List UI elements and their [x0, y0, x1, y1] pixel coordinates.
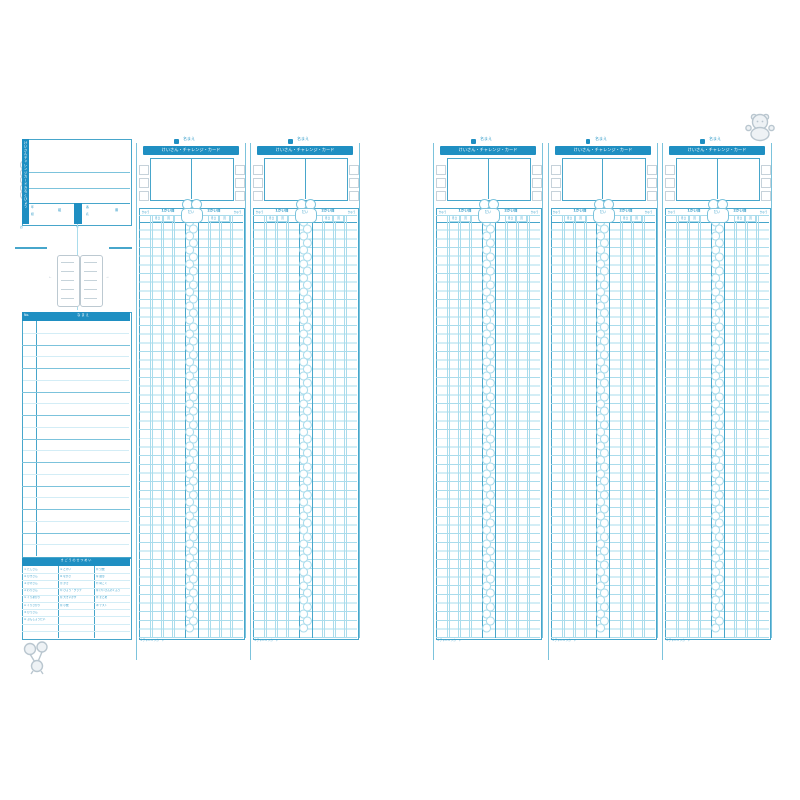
roster-row-line — [22, 392, 130, 393]
strip-4-grid-col-line — [644, 215, 645, 638]
roster-row-midline — [23, 333, 129, 334]
strip-3-grid-col-line — [458, 215, 459, 638]
strip-3-side-tab-left — [436, 191, 446, 201]
title-box-bar — [22, 139, 29, 224]
strip-4-side-tab-left — [551, 165, 561, 175]
strip-3-grid-col-line — [469, 215, 470, 638]
strip-3-sub-cell — [460, 215, 471, 222]
strip-2-grid-col-line — [266, 215, 267, 638]
strip-2-center-col-right — [312, 208, 313, 638]
strip-3-grid-col-line — [471, 215, 472, 638]
strip-5-sub-cell — [689, 215, 700, 222]
strip-1-side-tab-left — [139, 178, 149, 188]
strip-2-title-bar — [257, 146, 353, 155]
strip-3-grid-col-line — [507, 215, 508, 638]
cut-mark-left — [15, 247, 47, 249]
strip-2-grid-col-line — [333, 215, 334, 638]
strip-3-bubble-box-center-line — [488, 158, 489, 199]
strip-1-title-bar — [143, 146, 239, 155]
strip-3-sub-cell — [449, 215, 460, 222]
strip-4-sub-cell — [575, 215, 586, 222]
balloon-child-mascot — [21, 641, 57, 675]
strip-5-grid-col-line — [698, 215, 699, 638]
strip-1-side-tab-right — [235, 191, 245, 201]
strip-4-grid-col-line — [573, 215, 574, 638]
strip-1-grid-col-line — [172, 215, 173, 638]
title-box-line-1 — [29, 172, 130, 173]
roster-row-line — [22, 533, 130, 534]
legend-header-bar — [22, 558, 130, 566]
strip-1-border-right — [245, 143, 246, 638]
roster-row-midline — [23, 403, 129, 404]
strip-3-side-tab-right — [532, 191, 542, 201]
strip-5-name-icon — [700, 139, 705, 144]
booklet-right-page-dash — [84, 262, 97, 263]
strip-2-grid-col-line — [286, 215, 287, 638]
legend-row-line — [22, 602, 130, 603]
strip-2-bubble-box — [264, 158, 348, 201]
strip-1-bubble-box-center-line — [191, 158, 192, 199]
strip-4-sub-cell — [631, 215, 642, 222]
strip-1-side-tab-left — [139, 191, 149, 201]
strip-1-grid-col-line — [232, 215, 233, 638]
strip-5-center-col-right — [724, 208, 725, 638]
strip-3-center-col-right — [495, 208, 496, 638]
booklet-right-page-dash — [84, 289, 97, 290]
strip-1-center-tab — [181, 208, 203, 223]
strip-5-bubble-box — [676, 158, 760, 201]
strip-1-grid-col-line — [174, 215, 175, 638]
strip-5-center-chain — [711, 208, 724, 638]
strip-5-center-tab — [707, 208, 729, 223]
strip-4-grid-col-line — [586, 215, 587, 638]
title-box-line-2 — [29, 188, 130, 189]
strip-4-side-tab-left — [551, 191, 561, 201]
strip-4-grid-col-line — [631, 215, 632, 638]
scanned-form-spread: 名まえけいさん・チャレンジ・カードだいきゅうきゅう1かい目2かい目月日回月日回©… — [0, 0, 800, 800]
strip-5-sub-cell — [745, 215, 756, 222]
strip-3-side-tab-left — [436, 165, 446, 175]
strip-5-border-right — [771, 143, 772, 638]
strip-2-center-tab — [295, 208, 317, 223]
strip-3-sub-cell — [516, 215, 527, 222]
booklet-left-page-dash — [61, 289, 74, 290]
legend-row-line — [22, 580, 130, 581]
strip-5-border-left — [662, 143, 663, 660]
strip-2-bubble-box-center-line — [305, 158, 306, 199]
strip-5-sub-cell — [734, 215, 745, 222]
strip-2-grid-col-line — [264, 215, 265, 638]
roster-row-line — [22, 415, 130, 416]
strip-3-side-tab-left — [436, 178, 446, 188]
strip-4-center-col-right — [609, 208, 610, 638]
booklet-right-page-dash — [84, 298, 97, 299]
strip-1-grid-col-line — [219, 215, 220, 638]
roster-row-midline — [23, 450, 129, 451]
strip-5-side-tab-right — [761, 178, 771, 188]
strip-4-name-icon — [586, 139, 591, 144]
strip-1-grid-col-line — [163, 215, 164, 638]
strip-1-grid-col-line — [221, 215, 222, 638]
strip-1-name-icon — [174, 139, 179, 144]
strip-4-side-tab-right — [647, 165, 657, 175]
strip-4-side-tab-right — [647, 191, 657, 201]
strip-2-side-tab-left — [253, 191, 263, 201]
booklet-right-page-dash — [84, 280, 97, 281]
strip-5-side-tab-left — [665, 165, 675, 175]
strip-2-name-icon — [288, 139, 293, 144]
strip-3-name-icon — [471, 139, 476, 144]
strip-4-side-tab-right — [647, 178, 657, 188]
strip-4-grid-col-line — [562, 215, 563, 638]
strip-1-side-tab-left — [139, 165, 149, 175]
strip-2-name-label: 名まえ — [297, 137, 319, 141]
strip-1-side-tab-right — [235, 165, 245, 175]
strip-4-bubble-box-center-line — [602, 158, 603, 199]
strip-1-sub-cell — [219, 215, 230, 222]
strip-3-grid-col-line — [449, 215, 450, 638]
strip-1-bubble-box — [150, 158, 234, 201]
strip-4-title-bar — [555, 146, 651, 155]
strip-3-bubble-box — [447, 158, 531, 201]
roster-header-bar — [22, 312, 130, 321]
strip-2-sub-cell — [277, 215, 288, 222]
strip-4-sub-cell — [564, 215, 575, 222]
strip-4-grid-col-line — [633, 215, 634, 638]
legend-row-line — [22, 624, 130, 625]
legend-row-line — [22, 616, 130, 617]
roster-row-midline — [23, 356, 129, 357]
strip-5-grid-col-line — [747, 215, 748, 638]
roster-row-midline — [23, 497, 129, 498]
strip-5-grid-col-line — [689, 215, 690, 638]
strip-3-side-tab-right — [532, 178, 542, 188]
strip-4-bubble-box — [562, 158, 646, 201]
strip-4-border-right — [657, 143, 658, 638]
bear-mascot — [742, 108, 778, 142]
strip-5-side-tab-right — [761, 165, 771, 175]
strip-3-title-bar — [440, 146, 536, 155]
strip-1-grid-col-line — [230, 215, 231, 638]
strip-5-side-tab-left — [665, 191, 675, 201]
strip-2-sub-cell — [322, 215, 333, 222]
strip-1-grid-col-line — [150, 215, 151, 638]
strip-5-grid-col-line — [736, 215, 737, 638]
strip-4-border-left — [548, 143, 549, 660]
strip-1-name-label: 名まえ — [183, 137, 205, 141]
roster-row-line — [22, 486, 130, 487]
booklet-mark-left: ← — [49, 276, 57, 279]
strip-2-grid-col-line — [346, 215, 347, 638]
strip-4-center-chain — [596, 208, 609, 638]
roster-row-line — [22, 462, 130, 463]
class-row-center-block — [74, 203, 82, 224]
strip-1-sub-cell — [152, 215, 163, 222]
booklet-left-page-dash — [61, 298, 74, 299]
legend-row-line — [22, 595, 130, 596]
strip-3-center-tab — [478, 208, 500, 223]
roster-row-line — [22, 368, 130, 369]
booklet-left-page-dash — [61, 271, 74, 272]
strip-2-grid-col-line — [275, 215, 276, 638]
strip-4-side-tab-left — [551, 178, 561, 188]
roster-row-midline — [23, 427, 129, 428]
strip-2-side-tab-right — [349, 191, 359, 201]
strip-2-side-tab-left — [253, 165, 263, 175]
strip-4-center-tab — [593, 208, 615, 223]
strip-5-sub-cell — [678, 215, 689, 222]
strip-3-grid-col-line — [529, 215, 530, 638]
strip-3-name-label: 名まえ — [480, 137, 502, 141]
booklet-right-page-dash — [84, 271, 97, 272]
strip-2-border-left — [250, 143, 251, 660]
strip-5-name-label: 名まえ — [709, 137, 731, 141]
strip-2-grid-col-line — [324, 215, 325, 638]
strip-2-side-tab-left — [253, 178, 263, 188]
strip-4-grid-col-line — [620, 215, 621, 638]
strip-5-grid-col-line — [734, 215, 735, 638]
strip-1-grid-col-line — [208, 215, 209, 638]
strip-3-border-left — [433, 143, 434, 660]
strip-1-grid-col-line — [161, 215, 162, 638]
legend-row-line — [22, 609, 130, 610]
strip-4-grid-col-line — [575, 215, 576, 638]
strip-5-grid-col-line — [687, 215, 688, 638]
strip-1-center-chain — [185, 208, 198, 638]
strip-5-side-tab-left — [665, 178, 675, 188]
roster-row-line — [22, 345, 130, 346]
strip-2-sub-cell — [266, 215, 277, 222]
strip-2-side-tab-right — [349, 165, 359, 175]
legend-table — [22, 558, 132, 640]
strip-5-title-bar — [669, 146, 765, 155]
fold-note-left: お — [20, 226, 28, 229]
strip-4-name-label: 名まえ — [595, 137, 617, 141]
strip-5-side-tab-right — [761, 191, 771, 201]
strip-3-center-chain — [482, 208, 495, 638]
strip-3-sub-cell — [505, 215, 516, 222]
strip-5-grid-col-line — [676, 215, 677, 638]
strip-1-side-tab-right — [235, 178, 245, 188]
booklet-left-page-dash — [61, 280, 74, 281]
strip-3-side-tab-right — [532, 165, 542, 175]
strip-1-center-col-right — [198, 208, 199, 638]
roster-row-midline — [23, 380, 129, 381]
strip-2-sub-cell — [333, 215, 344, 222]
strip-2-grid-col-line — [335, 215, 336, 638]
strip-4-grid-col-line — [622, 215, 623, 638]
strip-5-bubble-box-center-line — [717, 158, 718, 199]
strip-2-side-tab-right — [349, 178, 359, 188]
roster-row-midline — [23, 521, 129, 522]
strip-2-grid-col-line — [344, 215, 345, 638]
strip-5-grid-col-line — [758, 215, 759, 638]
legend-row-line — [22, 573, 130, 574]
strip-2-center-chain — [299, 208, 312, 638]
strip-4-grid-col-line — [642, 215, 643, 638]
strip-2-border-right — [359, 143, 360, 638]
cut-mark-right — [109, 247, 132, 249]
booklet-mark-right: → — [106, 276, 114, 279]
strip-3-grid-col-line — [518, 215, 519, 638]
strip-3-grid-col-line — [447, 215, 448, 638]
roster-row-line — [22, 509, 130, 510]
roster-row-midline — [23, 474, 129, 475]
strip-3-grid-col-line — [460, 215, 461, 638]
roster-row-midline — [23, 544, 129, 545]
strip-5-grid-col-line — [756, 215, 757, 638]
booklet-left-page-dash — [61, 262, 74, 263]
strip-1-sub-cell — [163, 215, 174, 222]
strip-4-grid-col-line — [584, 215, 585, 638]
roster-row-line — [22, 439, 130, 440]
strip-1-sub-cell — [208, 215, 219, 222]
strip-4-sub-cell — [620, 215, 631, 222]
strip-3-grid-col-line — [527, 215, 528, 638]
strip-1-grid-col-line — [152, 215, 153, 638]
strip-2-grid-col-line — [288, 215, 289, 638]
strip-2-grid-col-line — [322, 215, 323, 638]
strip-1-border-left — [136, 143, 137, 660]
legend-row-line — [22, 631, 130, 632]
strip-3-grid-col-line — [505, 215, 506, 638]
strip-2-grid-col-line — [277, 215, 278, 638]
strip-1-grid-col-line — [210, 215, 211, 638]
strip-5-grid-col-line — [678, 215, 679, 638]
strip-3-border-right — [542, 143, 543, 638]
legend-row-line — [22, 588, 130, 589]
strip-4-grid-col-line — [564, 215, 565, 638]
strip-5-grid-col-line — [700, 215, 701, 638]
strip-5-grid-col-line — [745, 215, 746, 638]
strip-3-grid-col-line — [516, 215, 517, 638]
